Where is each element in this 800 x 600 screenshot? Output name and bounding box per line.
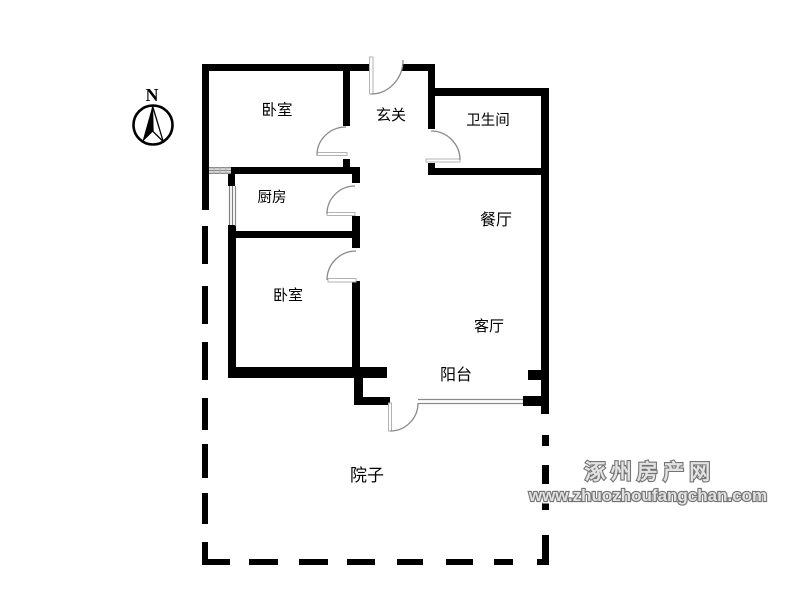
svg-text:卫生间: 卫生间: [466, 112, 510, 129]
svg-text:客厅: 客厅: [474, 318, 504, 335]
svg-text:餐厅: 餐厅: [480, 211, 512, 229]
svg-text:卧室: 卧室: [261, 101, 292, 119]
svg-text:N: N: [146, 85, 159, 105]
svg-text:院子: 院子: [350, 466, 384, 485]
svg-text:玄关: 玄关: [376, 107, 406, 124]
svg-text:www.zhuozhoufangchan.com: www.zhuozhoufangchan.com: [528, 486, 767, 505]
svg-text:阳台: 阳台: [440, 366, 472, 384]
svg-text:卧室: 卧室: [273, 287, 303, 304]
svg-text:厨房: 厨房: [258, 189, 287, 206]
svg-text:涿州房产网: 涿州房产网: [585, 460, 716, 484]
